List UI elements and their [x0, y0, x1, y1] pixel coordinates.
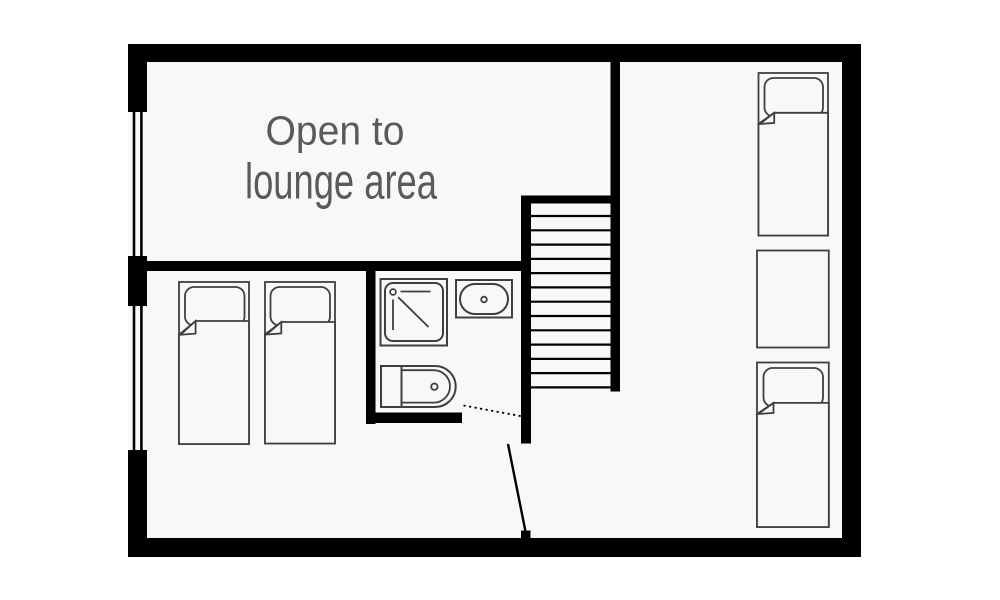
svg-text:Open to: Open to	[266, 107, 405, 153]
svg-text:lounge area: lounge area	[245, 154, 437, 210]
